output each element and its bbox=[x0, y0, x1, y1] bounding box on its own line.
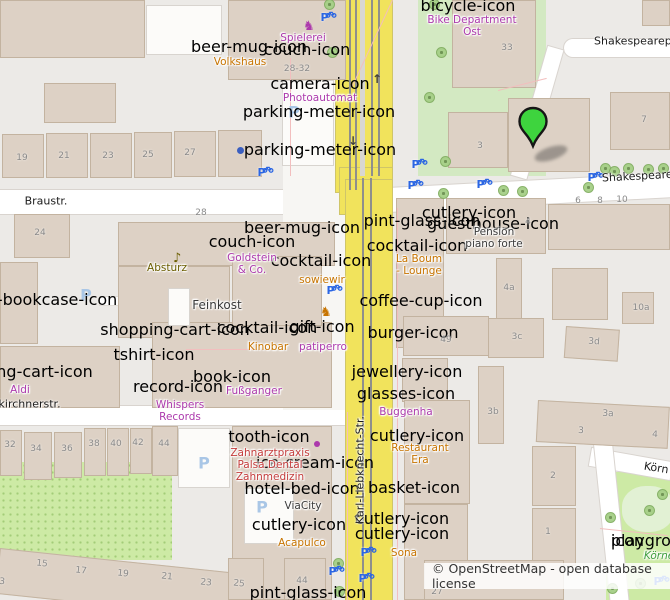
tree-icon bbox=[436, 47, 447, 58]
poi-label: Spielerei bbox=[280, 32, 326, 44]
house-number: 3 bbox=[477, 141, 483, 151]
building bbox=[0, 0, 145, 58]
building bbox=[448, 112, 508, 168]
house-number: 49 bbox=[440, 335, 451, 345]
building bbox=[54, 432, 82, 478]
poi-label: Whispers Records bbox=[156, 399, 204, 423]
bicycle-parking-icon: P bbox=[412, 160, 429, 176]
tree-icon bbox=[605, 512, 616, 523]
bicycle-parking-icon: P bbox=[327, 286, 344, 302]
poi-label: Fußganger bbox=[226, 385, 282, 397]
house-number: 10a bbox=[633, 303, 650, 313]
building bbox=[642, 0, 670, 26]
house-number: 34 bbox=[30, 444, 41, 454]
building bbox=[107, 428, 129, 476]
house-number: 28 bbox=[195, 208, 206, 218]
house-number: 2 bbox=[550, 471, 556, 481]
poi-label: Bike Department Ost bbox=[427, 14, 516, 38]
poi-label: Feinkost bbox=[192, 299, 241, 311]
bicycle-parking-icon: P bbox=[359, 574, 376, 590]
tree-icon bbox=[517, 186, 528, 197]
house-number: 32 bbox=[4, 440, 15, 450]
poi-label: Photoautomat bbox=[283, 92, 357, 104]
tree-icon bbox=[644, 505, 655, 516]
house-number: 3c bbox=[512, 332, 523, 342]
house-number: 8 bbox=[597, 196, 603, 206]
building bbox=[610, 92, 670, 150]
poi-label: Absturz bbox=[147, 262, 187, 274]
poi-label: ViaCity bbox=[285, 500, 322, 512]
building bbox=[532, 508, 576, 566]
parking-icon: P bbox=[256, 498, 268, 517]
parking-icon: P bbox=[198, 454, 210, 473]
poi-label: La Boum - Lounge bbox=[396, 253, 442, 277]
house-number: 4a bbox=[503, 283, 514, 293]
poi-label: Buggenha bbox=[379, 406, 432, 418]
building bbox=[130, 428, 152, 474]
house-number: 44 bbox=[158, 439, 169, 449]
house-number: 4 bbox=[525, 217, 531, 227]
building bbox=[44, 83, 116, 123]
poi-dot-icon bbox=[237, 147, 244, 154]
house-number: 3a bbox=[602, 409, 614, 420]
poi-label: Goldstein & Co. bbox=[227, 252, 277, 276]
building bbox=[548, 204, 670, 250]
bicycle-parking-icon: P bbox=[477, 180, 494, 196]
street-label: Karl-Liebknecht-Str. bbox=[354, 416, 367, 524]
poi-label: Aldi bbox=[10, 384, 30, 396]
oneway-arrow-icon: ↑ bbox=[372, 72, 382, 86]
house-number: 36 bbox=[61, 444, 72, 454]
house-number: 7 bbox=[641, 115, 647, 125]
bicycle-parking-icon: P bbox=[258, 168, 275, 184]
house-number: 40 bbox=[110, 439, 121, 449]
tree-icon bbox=[440, 156, 451, 167]
poi-label: Restaurant Era bbox=[391, 442, 448, 466]
house-number: 3 bbox=[578, 426, 584, 436]
house-number: 19 bbox=[117, 568, 129, 579]
poi-label: Kinobar bbox=[248, 341, 288, 353]
poi-label: Acapulco bbox=[278, 537, 326, 549]
attribution-bar: © OpenStreetMap - open database license bbox=[424, 563, 670, 589]
house-number: 3b bbox=[487, 407, 498, 417]
bicycle-parking-icon: P bbox=[361, 548, 378, 564]
poi-label: Zahnarztpraxis Palsa Dental Zahnmedizin bbox=[230, 447, 309, 483]
tree-icon bbox=[438, 188, 449, 199]
house-number: 25 bbox=[233, 578, 245, 589]
building bbox=[478, 366, 504, 444]
boundary-line bbox=[347, 412, 348, 600]
house-number: 1 bbox=[545, 527, 551, 537]
house-number: 23 bbox=[200, 577, 212, 588]
poi-label: patiperro bbox=[299, 341, 347, 353]
bicycle-parking-icon: P bbox=[408, 181, 425, 197]
house-number: 28-32 bbox=[284, 64, 310, 74]
house-number: 3 bbox=[0, 577, 5, 588]
tree-icon bbox=[498, 185, 509, 196]
house-number: 23 bbox=[102, 151, 113, 161]
house-number: 21 bbox=[58, 151, 69, 161]
boundary-line bbox=[186, 349, 256, 350]
house-number: 44 bbox=[296, 576, 307, 586]
building bbox=[84, 428, 106, 476]
street-label: Braustr. bbox=[25, 195, 68, 208]
poi-label: Volkshaus bbox=[214, 56, 266, 68]
house-number: 6 bbox=[575, 196, 581, 206]
attribution-link[interactable]: © OpenStreetMap - open database license bbox=[432, 561, 670, 591]
house-number: 33 bbox=[501, 43, 512, 53]
map-canvas[interactable]: beer-mug-iconbeer-mug-iconpint-glass-ico… bbox=[0, 0, 670, 600]
street-label: rkirchnerstr. bbox=[0, 398, 61, 411]
house-number: 19 bbox=[16, 153, 27, 163]
house-number: 4 bbox=[652, 430, 658, 440]
house-number: 27 bbox=[184, 148, 195, 158]
building bbox=[24, 432, 52, 480]
building bbox=[536, 400, 670, 449]
building bbox=[152, 426, 178, 476]
house-number: 10 bbox=[616, 195, 627, 205]
house-number: 25 bbox=[142, 150, 153, 160]
poi-label: sowiewir bbox=[299, 274, 345, 286]
tree-icon bbox=[424, 92, 435, 103]
house-number: 21 bbox=[161, 571, 173, 582]
bicycle-parking-icon: P bbox=[321, 13, 338, 29]
house-number: 15 bbox=[36, 558, 48, 569]
tree-icon bbox=[657, 489, 668, 500]
house-number: 3d bbox=[588, 337, 600, 348]
house-number: 17 bbox=[75, 565, 87, 576]
building bbox=[0, 430, 22, 476]
house-number: 42 bbox=[132, 438, 143, 448]
bicycle-parking-icon: P bbox=[329, 567, 346, 583]
house-number: 24 bbox=[34, 228, 45, 238]
poi-label: Pension piano forte bbox=[465, 226, 522, 250]
street-label: Shakespearep bbox=[594, 35, 670, 48]
poi-label: Sona bbox=[391, 547, 417, 559]
building bbox=[552, 268, 608, 320]
house-number: 38 bbox=[88, 439, 99, 449]
poi-dot-icon bbox=[314, 441, 320, 447]
